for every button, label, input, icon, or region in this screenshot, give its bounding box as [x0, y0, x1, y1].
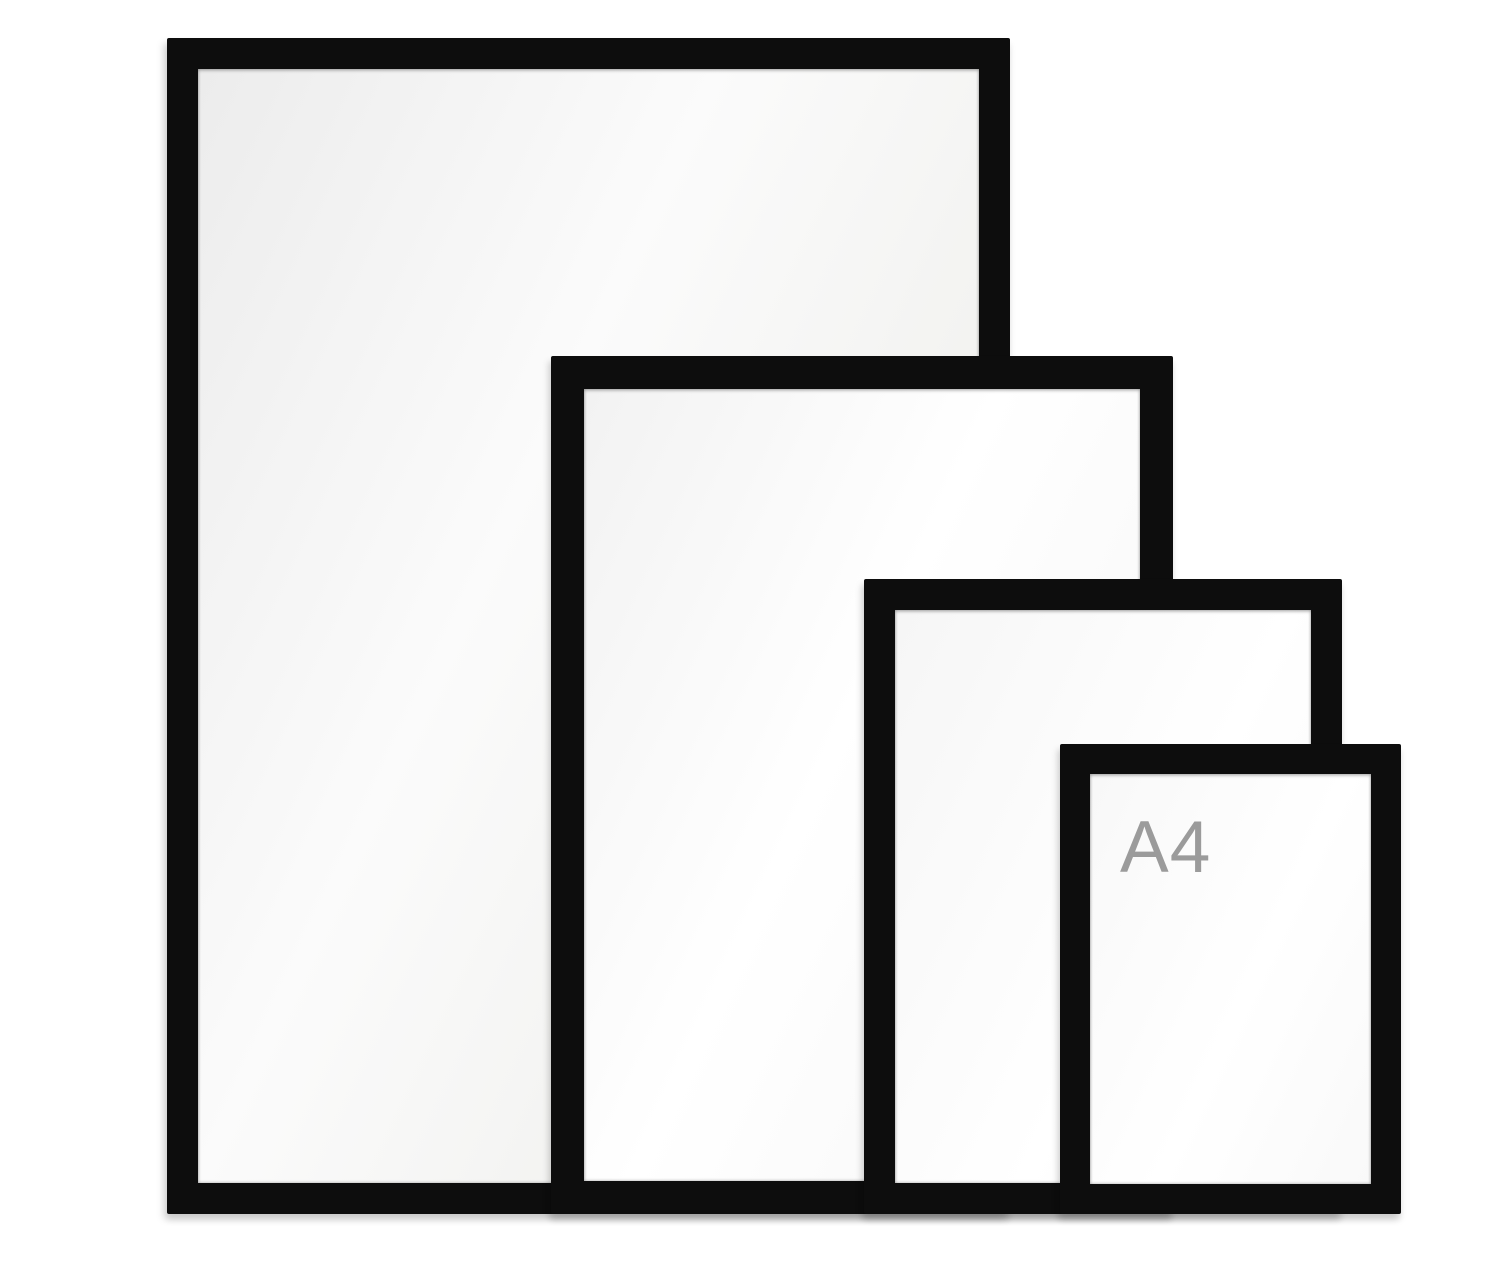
a4-size-label: A4 — [1120, 811, 1211, 884]
product-image: A4 — [0, 0, 1500, 1265]
frame-opening-a4: A4 — [1090, 774, 1371, 1184]
picture-frame-a4: A4 — [1060, 744, 1401, 1214]
